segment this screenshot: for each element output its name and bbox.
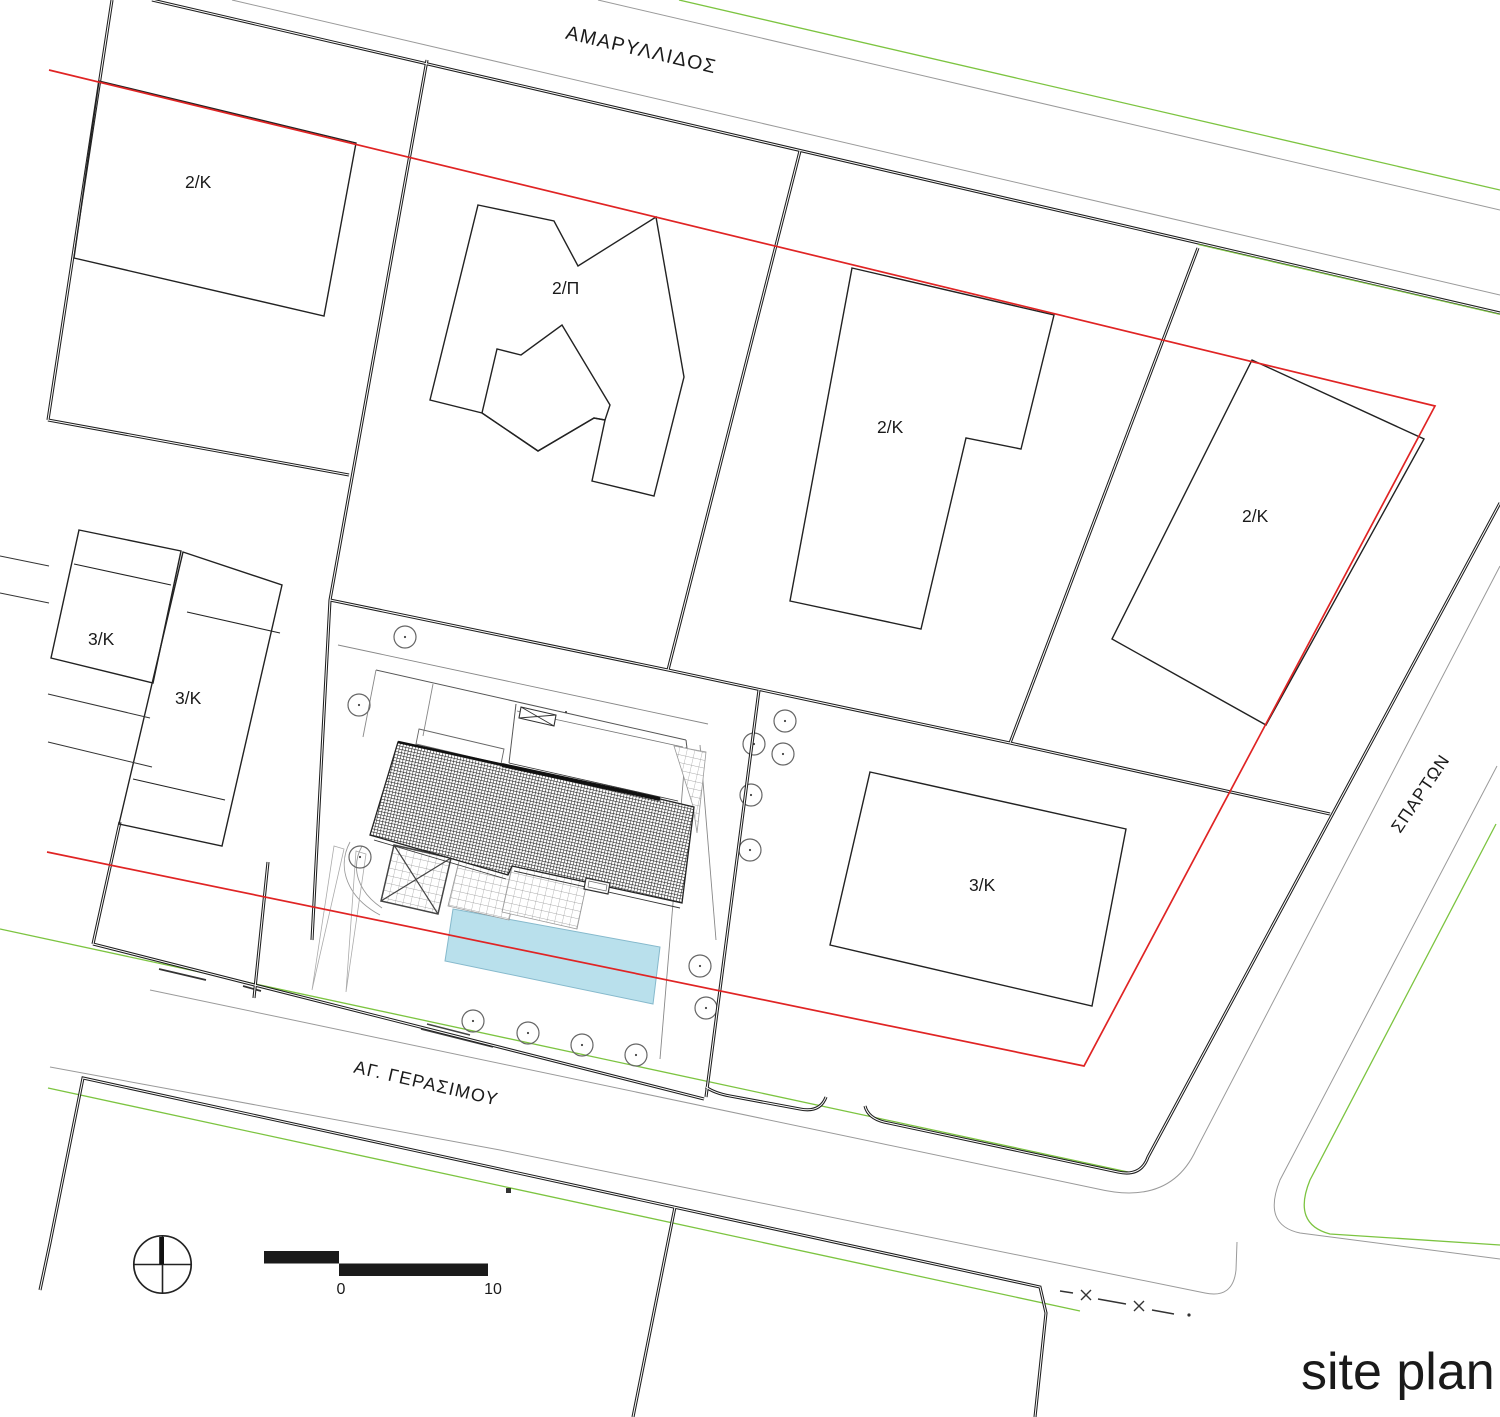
svg-text:10: 10 <box>484 1281 502 1298</box>
svg-text:2/K: 2/K <box>877 417 904 437</box>
svg-text:2/K: 2/K <box>185 172 212 192</box>
svg-text:3/K: 3/K <box>88 629 115 649</box>
svg-text:3/K: 3/K <box>175 688 202 708</box>
svg-text:3/K: 3/K <box>969 875 996 895</box>
svg-text:site plan: site plan <box>1301 1343 1495 1401</box>
svg-text:2/Π: 2/Π <box>552 278 579 298</box>
svg-text:0: 0 <box>337 1281 346 1298</box>
svg-text:2/K: 2/K <box>1242 506 1269 526</box>
